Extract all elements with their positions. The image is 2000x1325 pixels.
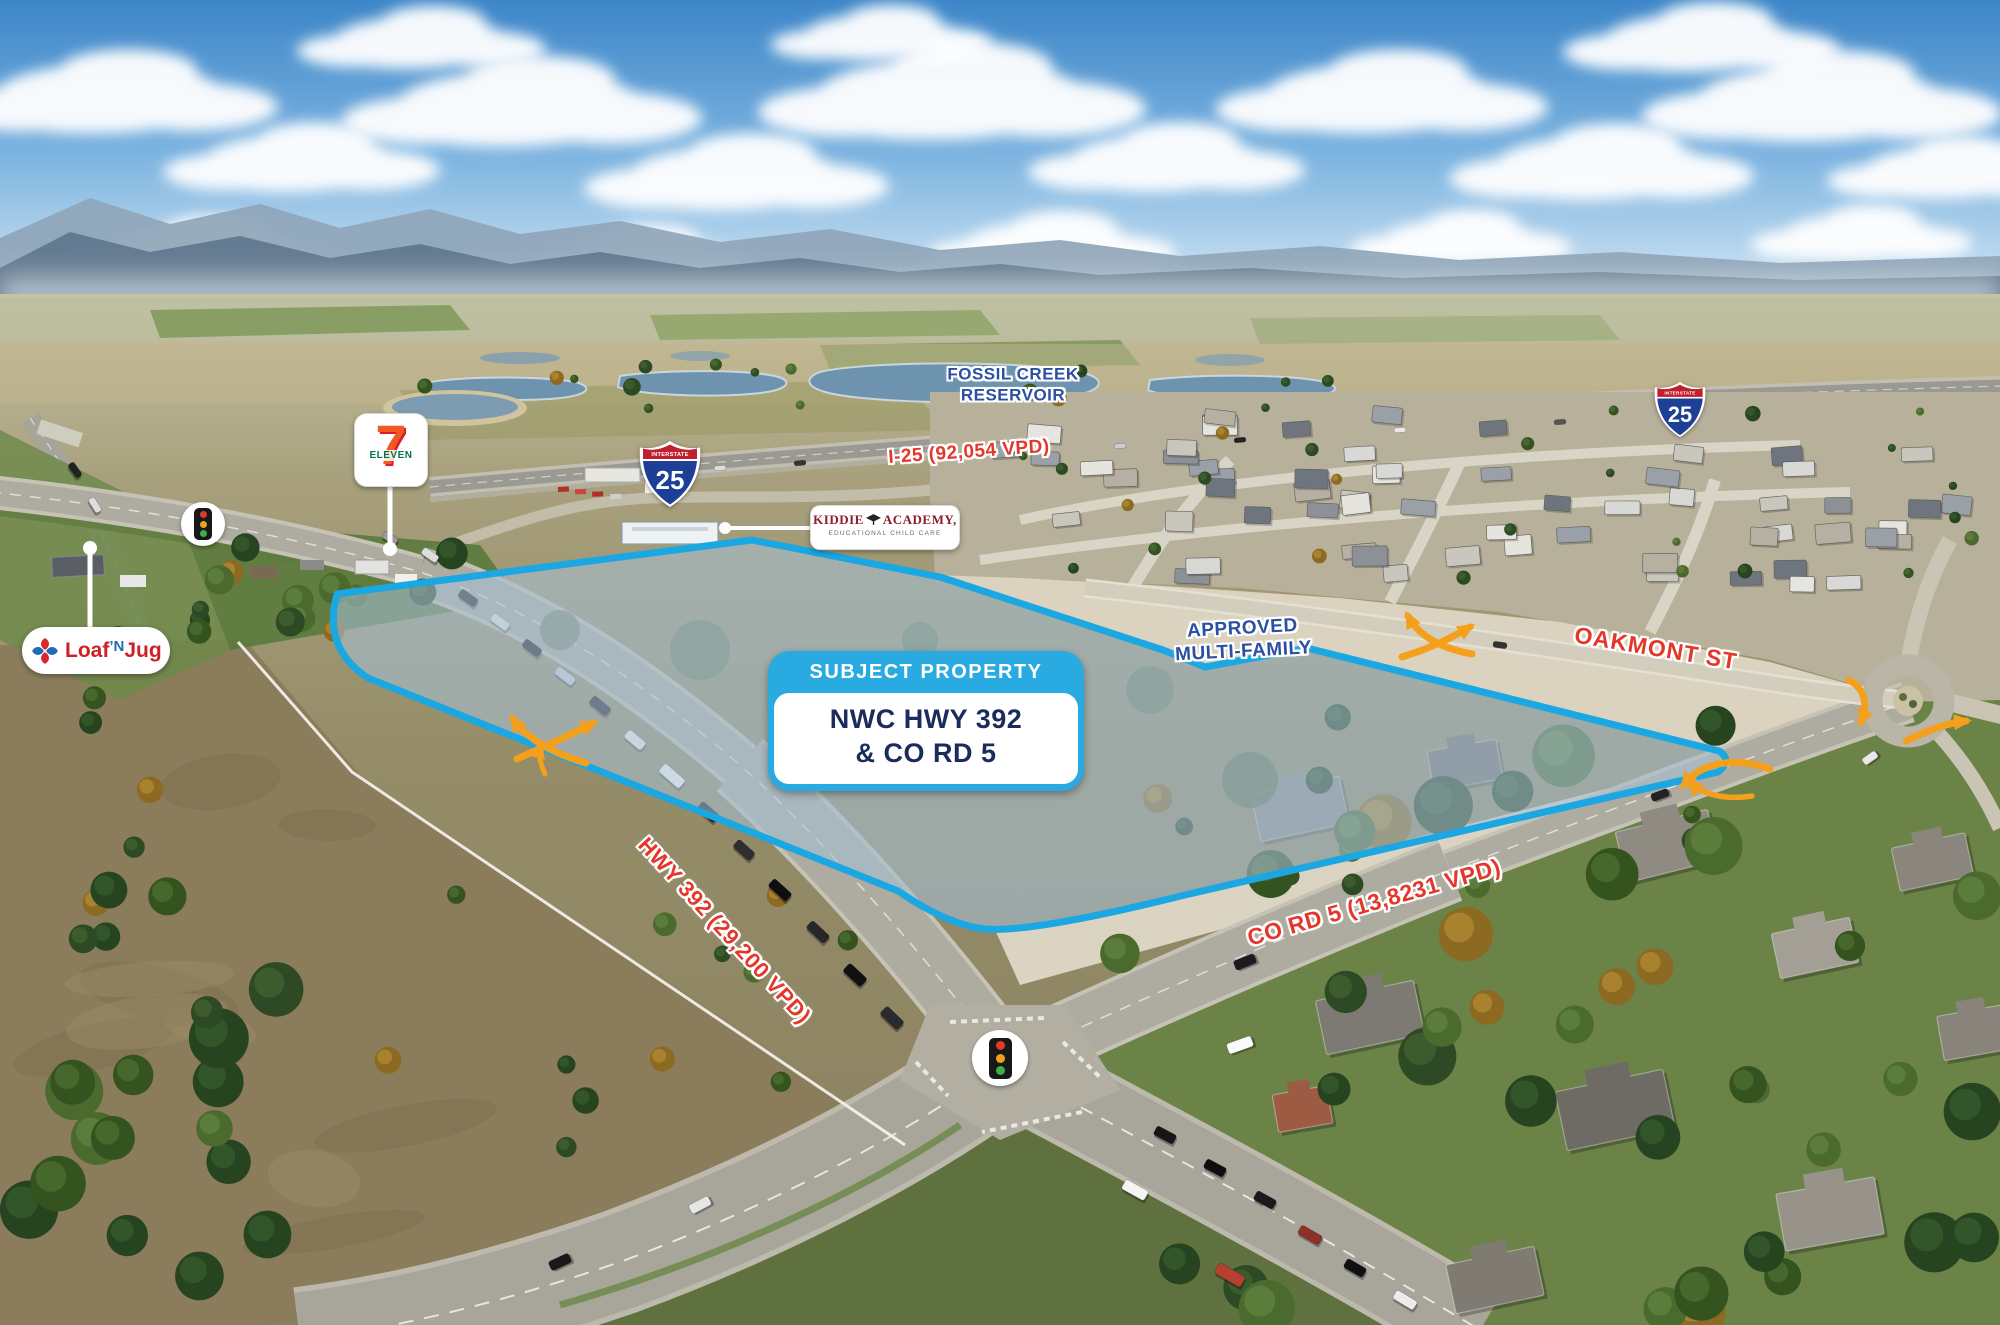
traffic-light-icon-main-intersection [972,1030,1028,1086]
seven-eleven-location-dot [383,542,397,556]
approved-multifamily-label: APPROVED MULTI-FAMILY [1173,613,1312,666]
callout-body: NWC HWY 392 & CO RD 5 [774,693,1078,784]
loaf-n-jug-sign: Loaf’NJug [22,627,170,674]
traffic-light-icon-west [181,502,225,546]
kiddie-academy-tagline: EDUCATIONAL CHILD CARE [811,530,959,537]
kiddie-academy-name: KIDDIEACADEMY, [811,513,959,527]
callout-header: SUBJECT PROPERTY [774,651,1078,693]
loaf-n-jug-location-dot [83,541,97,555]
callout-line-1: NWC HWY 392 [774,703,1078,737]
seven-eleven-sign: 7 ELEVEN [354,413,428,487]
kiddie-academy-building [622,522,718,544]
shield-interstate-text: INTERSTATE [651,452,688,458]
kiddie-academy-location-dot [719,522,731,534]
shield-route-number: 25 [656,465,685,495]
seven-eleven-seven: 7 [355,412,427,477]
svg-text:INTERSTATE: INTERSTATE [1664,390,1695,395]
loaf-n-jug-icon [31,637,59,665]
interstate-25-shield-east: INTERSTATE 25 [1654,381,1706,438]
graduation-cap-icon [866,514,881,527]
interstate-25-shield-west: INTERSTATE 25 [639,440,701,508]
loaf-n-jug-text: Loaf’NJug [65,638,162,663]
svg-text:25: 25 [1668,402,1692,427]
callout-line-2: & CO RD 5 [774,737,1078,771]
aerial-map: SUBJECT PROPERTY NWC HWY 392 & CO RD 5 F… [0,0,2000,1325]
subject-property-callout: SUBJECT PROPERTY NWC HWY 392 & CO RD 5 [768,651,1084,791]
kiddie-academy-sign: KIDDIEACADEMY, EDUCATIONAL CHILD CARE [810,505,960,550]
seven-eleven-eleven: ELEVEN [355,450,427,461]
fossil-creek-reservoir-label: FOSSIL CREEK RESERVOIR [947,364,1078,405]
